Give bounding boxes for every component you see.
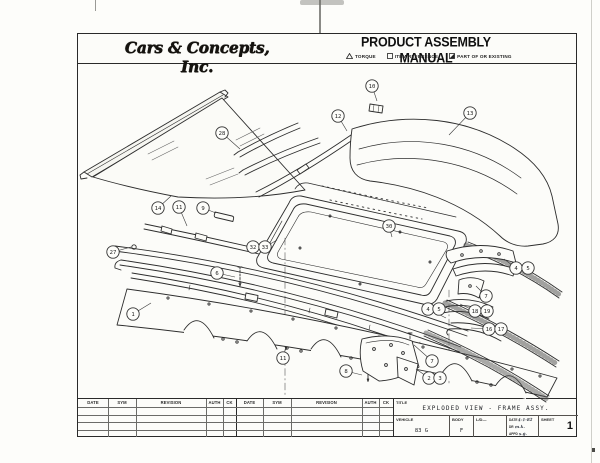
appd-value: s.g. [519,431,527,436]
title-block-bottom-row: VEHICLE 83 G BODY F L/D— DATE 4-1-82 DR … [394,416,578,437]
rev-header-revision: REVISION [291,400,362,407]
rev-header-sym: SYM [263,400,291,407]
table-rule [78,430,393,431]
scan-tick-mark [95,0,96,11]
date-value: 4-1-82 [518,417,533,423]
rev-header-ck: CK [223,400,236,407]
company-logo: Cars & Concepts, Inc. [112,38,282,76]
legend-label: ITEM REFERENCE [395,54,438,59]
body-value: F [450,428,473,434]
table-rule [78,415,393,416]
title-block-table: DATE SYM REVISION AUTH CK DATE SYM REVIS… [78,398,576,436]
manual-title: PRODUCT ASSEMBLY MANUAL [346,34,506,65]
triangle-icon [346,53,353,59]
page-edge-line [591,0,592,463]
legend-item-torque: TORQUE [346,53,376,59]
legend-label: TORQUE [355,54,376,59]
sheet-number: 1 [567,420,573,432]
appd-label: APPD [509,432,518,436]
vehicle-cell: VEHICLE 83 G [394,416,450,437]
body-cell: BODY F [450,416,474,437]
table-rule [78,422,393,423]
dr-value: m.k. [514,424,524,429]
scan-speck [592,448,595,452]
rev-header-auth: AUTH [206,400,223,407]
vehicle-value: 83 G [394,428,449,434]
ld-cell: L/D— [474,416,507,437]
date-label: DATE [509,418,517,422]
title-row: TITLE EXPLODED VIEW - FRAME ASSY. [394,399,578,416]
symbol-legend: TORQUE ITEM REFERENCE PART OF OR EXISTIN… [346,53,516,59]
rev-header-revision: REVISION [136,400,206,407]
vehicle-label: VEHICLE [396,417,413,422]
dr-label: DR [509,425,514,429]
ld-label: L/D— [476,417,486,422]
square-icon [387,53,393,59]
legend-item-part-of-or-existing: PART OF OR EXISTING [449,53,512,59]
sheet-label: SHEET [541,417,554,422]
legend-item-item-reference: ITEM REFERENCE [387,53,438,59]
scanned-manual-page: { "header": { "logo_text": "Cars & Conce… [0,0,600,463]
half-filled-square-icon [449,53,455,59]
rev-header-date: DATE [236,400,263,407]
rev-header-date: DATE [78,400,108,407]
table-rule [78,407,393,408]
drawing-title: EXPLODED VIEW - FRAME ASSY. [394,405,578,412]
rev-header-auth: AUTH [362,400,379,407]
scan-tick-mark [319,0,321,36]
sheet-cell: SHEET 1 [539,416,579,437]
rev-header-sym: SYM [108,400,136,407]
body-label: BODY [452,417,464,422]
title-block: TITLE EXPLODED VIEW - FRAME ASSY. VEHICL… [393,399,578,437]
date-dr-appd-cell: DATE 4-1-82 DR m.k. APPD s.g. [507,416,539,437]
scan-smudge [300,0,344,5]
drawing-border-frame: Cars & Concepts, Inc. PRODUCT ASSEMBLY M… [77,33,577,437]
rev-header-ck: CK [379,400,393,407]
legend-label: PART OF OR EXISTING [457,54,512,59]
sheet-header: Cars & Concepts, Inc. PRODUCT ASSEMBLY M… [78,34,576,64]
page-background: Cars & Concepts, Inc. PRODUCT ASSEMBLY M… [0,0,600,463]
